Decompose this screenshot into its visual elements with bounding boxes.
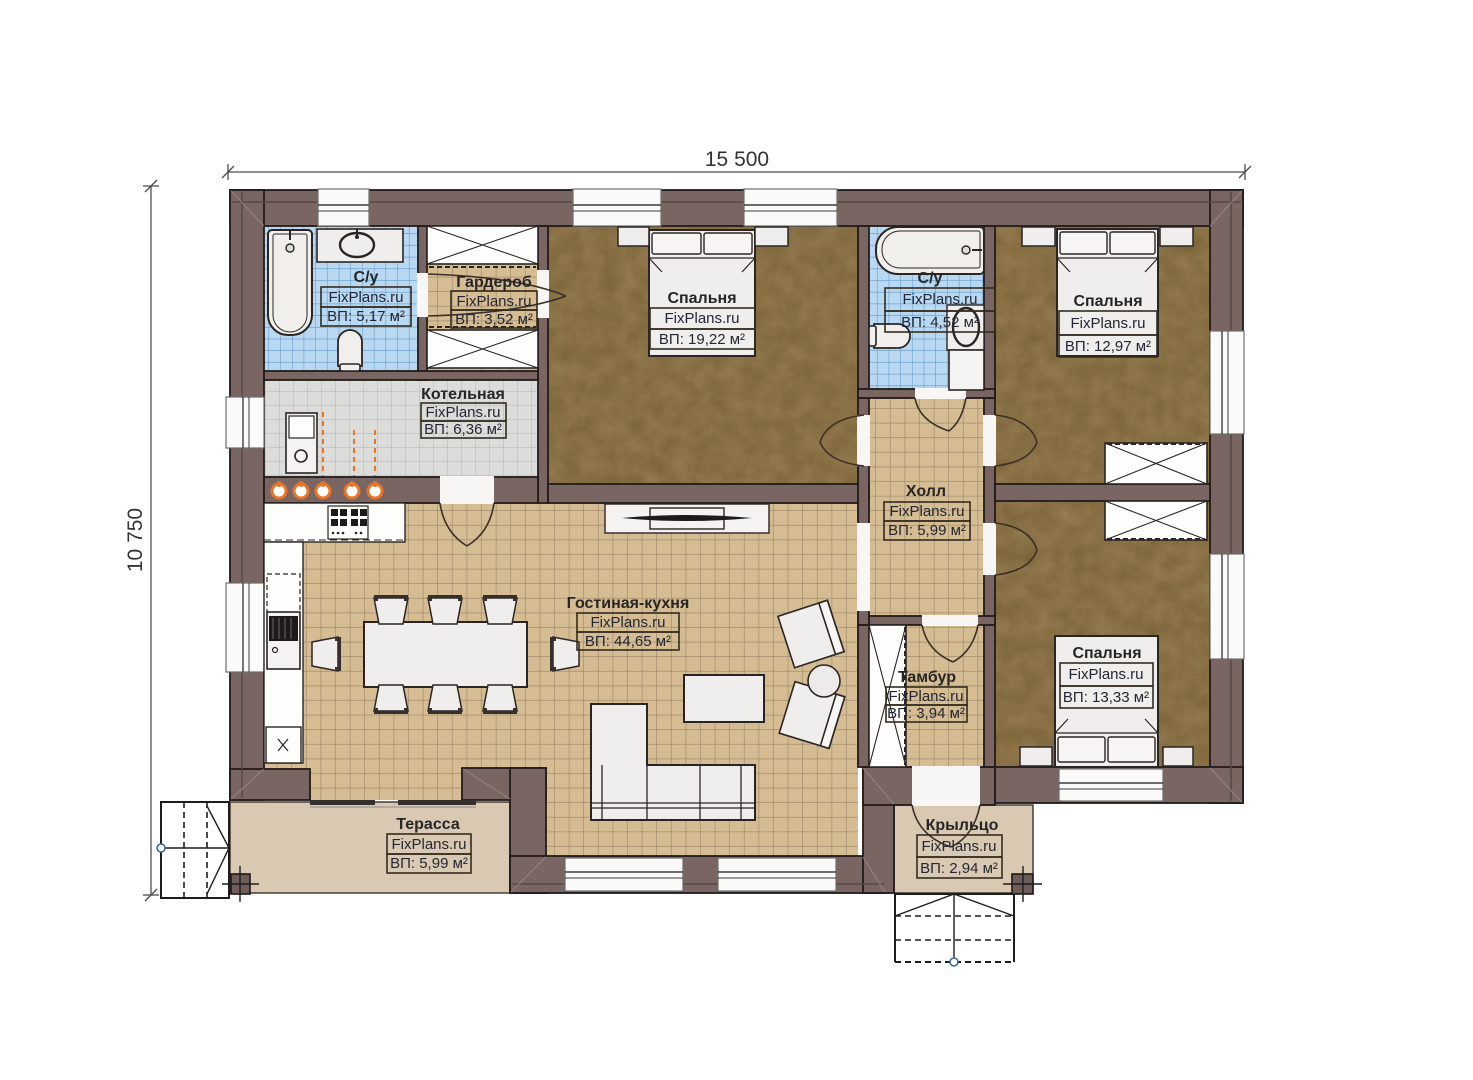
- svg-text:ВП: 2,94 м²: ВП: 2,94 м²: [920, 860, 998, 877]
- svg-text:FixPlans.ru: FixPlans.ru: [328, 289, 403, 306]
- svg-text:ВП: 13,33 м²: ВП: 13,33 м²: [1063, 689, 1149, 706]
- svg-text:С/у: С/у: [918, 270, 943, 287]
- svg-text:FixPlans.ru: FixPlans.ru: [425, 404, 500, 421]
- svg-text:FixPlans.ru: FixPlans.ru: [1070, 315, 1145, 332]
- svg-text:FixPlans.ru: FixPlans.ru: [888, 688, 963, 705]
- svg-text:ВП: 44,65 м²: ВП: 44,65 м²: [585, 633, 671, 650]
- svg-text:ВП: 3,94 м²: ВП: 3,94 м²: [887, 705, 965, 722]
- svg-text:ВП: 5,17 м²: ВП: 5,17 м²: [327, 308, 405, 325]
- svg-text:ВП: 5,99 м²: ВП: 5,99 м²: [888, 522, 966, 539]
- svg-text:Крыльцо: Крыльцо: [926, 817, 999, 834]
- svg-text:15 500: 15 500: [705, 148, 769, 171]
- svg-text:ВП: 5,99 м²: ВП: 5,99 м²: [390, 855, 468, 872]
- svg-text:ВП: 12,97 м²: ВП: 12,97 м²: [1065, 338, 1151, 355]
- svg-text:Холл: Холл: [906, 483, 946, 500]
- svg-text:FixPlans.ru: FixPlans.ru: [921, 838, 996, 855]
- svg-text:FixPlans.ru: FixPlans.ru: [889, 503, 964, 520]
- svg-text:ВП: 6,36 м²: ВП: 6,36 м²: [424, 421, 502, 438]
- svg-text:FixPlans.ru: FixPlans.ru: [902, 291, 977, 308]
- svg-text:ВП: 3,52 м²: ВП: 3,52 м²: [455, 311, 533, 328]
- svg-text:FixPlans.ru: FixPlans.ru: [590, 614, 665, 631]
- svg-text:Спальня: Спальня: [667, 290, 736, 307]
- svg-text:FixPlans.ru: FixPlans.ru: [664, 310, 739, 327]
- svg-text:FixPlans.ru: FixPlans.ru: [391, 836, 466, 853]
- svg-text:10 750: 10 750: [124, 508, 147, 572]
- svg-text:Спальня: Спальня: [1072, 645, 1141, 662]
- svg-text:Спальня: Спальня: [1073, 293, 1142, 310]
- svg-text:Гостиная-кухня: Гостиная-кухня: [567, 595, 690, 612]
- svg-text:Котельная: Котельная: [421, 386, 505, 403]
- svg-text:FixPlans.ru: FixPlans.ru: [1068, 666, 1143, 683]
- svg-text:С/у: С/у: [354, 269, 379, 286]
- svg-text:ВП: 4,52 м²: ВП: 4,52 м²: [901, 314, 979, 331]
- svg-text:ВП: 19,22 м²: ВП: 19,22 м²: [659, 331, 745, 348]
- svg-text:Тамбур: Тамбур: [898, 669, 956, 686]
- svg-text:Терасса: Терасса: [396, 816, 460, 833]
- svg-text:Гардероб: Гардероб: [456, 274, 532, 291]
- svg-text:FixPlans.ru: FixPlans.ru: [456, 293, 531, 310]
